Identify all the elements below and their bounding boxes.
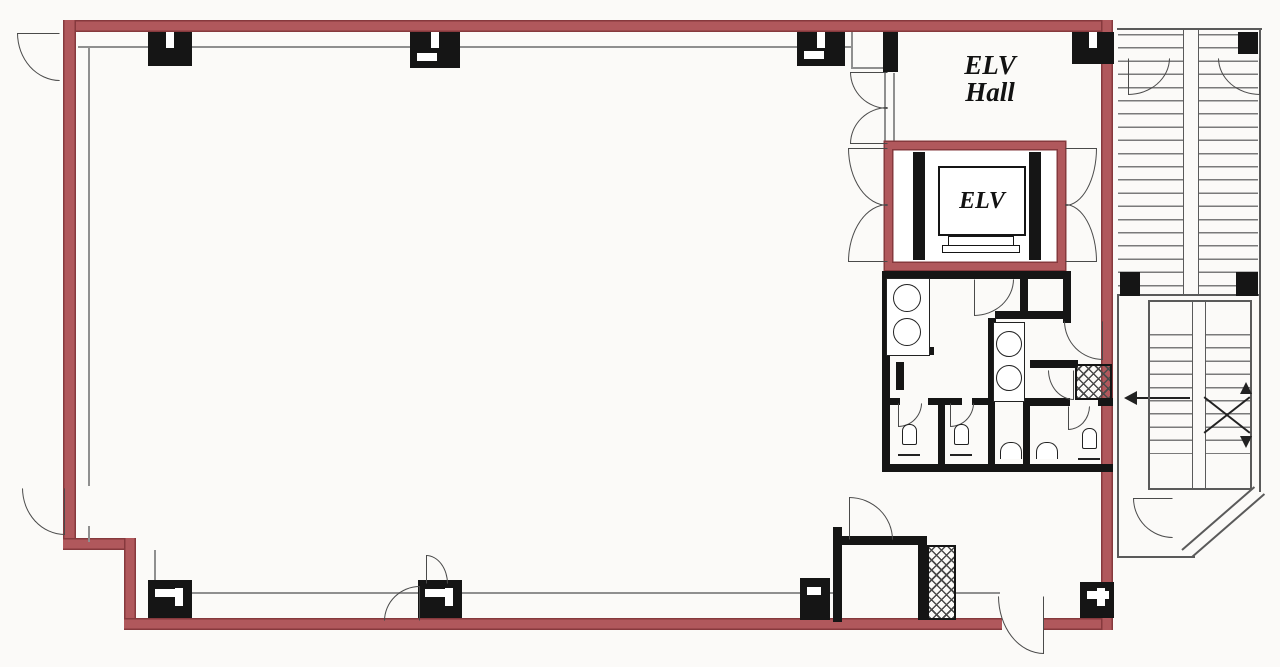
hall-door-upper-leaf2 xyxy=(850,107,888,144)
column-notch xyxy=(1097,588,1105,606)
column-notch xyxy=(1089,32,1097,48)
elevator-hall-label: ELV Hall xyxy=(925,52,1055,106)
stair-bottom-door xyxy=(1133,498,1173,538)
wash-basin xyxy=(893,284,921,312)
column-notch xyxy=(166,32,174,48)
utility-shaft-hatch xyxy=(1075,364,1112,400)
exterior-wall-step-vertical xyxy=(124,538,136,630)
elevator-hall-label-line2: Hall xyxy=(965,77,1015,107)
window-line-left xyxy=(88,46,90,486)
stair-down-arrow xyxy=(1240,436,1252,448)
elevator-cab-label: ELV xyxy=(959,189,1005,213)
shaft-east-door-leaf1 xyxy=(1065,148,1097,206)
exterior-door-top-left xyxy=(17,33,60,81)
exterior-wall-top xyxy=(63,20,1113,32)
shaft-west-door-leaf2 xyxy=(848,204,888,262)
exterior-wall-bottom-left xyxy=(124,618,1002,630)
toilet-bowl xyxy=(954,424,969,445)
elevator-shaft-wall-right xyxy=(1029,152,1041,260)
stair-upper-stringer xyxy=(1183,30,1199,294)
stair-up-arrow xyxy=(1240,382,1252,394)
floor-plan: ELV Hall ELV xyxy=(0,0,1280,667)
restroom-partition xyxy=(1030,398,1070,406)
restroom-partition xyxy=(896,362,904,390)
wash-basin xyxy=(893,318,921,346)
elevator-hall-label-line1: ELV xyxy=(964,50,1016,80)
column xyxy=(148,32,192,66)
toilet-bowl xyxy=(902,424,917,445)
toilet-icon xyxy=(950,424,972,456)
restroom-right-door xyxy=(1064,321,1103,360)
restroom-partition xyxy=(1030,360,1078,368)
restroom-partition xyxy=(1020,271,1028,319)
exterior-wall-left xyxy=(63,20,76,550)
stair-post xyxy=(1236,272,1258,296)
window-line-top xyxy=(78,46,852,48)
utility-room-wall-right xyxy=(918,536,927,620)
toilet-icon xyxy=(1078,428,1100,460)
window-line-step xyxy=(154,550,156,582)
stair-enclosure-bottom xyxy=(1117,556,1195,558)
exterior-door-bottom-right xyxy=(998,596,1044,654)
stall-door xyxy=(1068,406,1090,430)
stair-chamfer-outer xyxy=(1191,493,1265,557)
elevator-cab: ELV xyxy=(938,166,1026,236)
hall-wall-line-b xyxy=(893,73,895,143)
column-notch xyxy=(804,51,824,59)
column xyxy=(800,578,830,620)
vestibule-line-vertical xyxy=(851,32,853,69)
column-notch xyxy=(417,53,437,61)
column xyxy=(148,580,192,618)
window-line-left-lower xyxy=(88,526,90,542)
toilet-icon xyxy=(898,424,920,456)
column xyxy=(418,580,462,618)
elevator-shaft-wall-left xyxy=(913,152,925,260)
stair-direction-arrow xyxy=(1124,391,1137,405)
exterior-door-left xyxy=(22,488,65,535)
column-notch xyxy=(175,588,183,606)
vanity-counter xyxy=(886,278,930,356)
column-notch xyxy=(807,587,821,595)
column xyxy=(1072,32,1114,64)
hall-wall-stub xyxy=(883,32,898,72)
column-notch xyxy=(445,588,453,606)
stair-outline-right xyxy=(1259,30,1261,492)
stair-lower-bottom-line xyxy=(1148,488,1250,490)
column-notch xyxy=(155,589,177,597)
stall-partition xyxy=(988,398,995,472)
wash-basin xyxy=(996,331,1022,357)
urinal-icon xyxy=(1000,442,1022,459)
window-line-bottom xyxy=(192,592,842,594)
stair-lower-right-line xyxy=(1250,300,1252,490)
shaft-west-door-leaf1 xyxy=(848,148,888,206)
stair-enclosure-left xyxy=(1117,296,1119,558)
vanity-counter xyxy=(993,322,1025,402)
vestibule-line-horizontal xyxy=(851,67,884,69)
interior-door-leaf xyxy=(426,555,448,584)
stair-post xyxy=(1120,272,1140,296)
elevator-sill-outer xyxy=(942,245,1020,253)
column xyxy=(410,32,460,68)
shaft-east-door-leaf2 xyxy=(1065,204,1097,262)
hall-door-upper-leaf1 xyxy=(850,72,888,109)
urinal-screen xyxy=(1023,398,1030,472)
urinal-icon xyxy=(1036,442,1058,459)
stair-chamfer-inner xyxy=(1181,486,1255,550)
restroom-partition xyxy=(995,311,1065,319)
restroom-wall-bottom xyxy=(882,464,1113,472)
stall-partition xyxy=(938,398,945,472)
column xyxy=(797,32,845,66)
utility-duct-hatch xyxy=(927,545,956,620)
toilet-bowl xyxy=(1082,428,1097,449)
slop-sink-door xyxy=(1048,370,1074,400)
wash-basin xyxy=(996,365,1022,391)
column-notch xyxy=(425,589,447,597)
stair-post xyxy=(1238,32,1258,54)
column xyxy=(1080,582,1114,618)
utility-room-door xyxy=(849,497,893,540)
column-notch xyxy=(817,32,825,48)
column-notch xyxy=(431,32,439,48)
window-line-bottom-right xyxy=(953,592,1000,594)
utility-room-wall-left xyxy=(833,527,842,622)
